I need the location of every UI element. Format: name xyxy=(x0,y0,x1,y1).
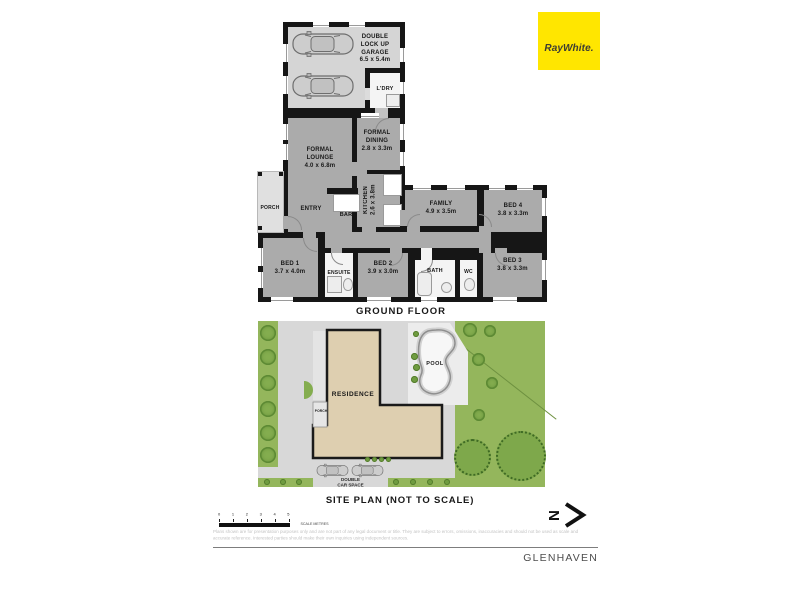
kitchen-bench xyxy=(383,174,402,196)
site-plan: RESIDENCE POOL PORCH DOUBLE CAR SPACE xyxy=(258,321,545,487)
shrub xyxy=(386,457,391,462)
tree xyxy=(472,353,485,366)
room-label-laundry: L'DRY xyxy=(368,86,402,93)
room-label-bed4: BED 4 3.8 x 3.3m xyxy=(489,203,537,219)
scale-unit-label: SCALE METRES xyxy=(301,522,329,526)
shrub xyxy=(411,353,418,360)
room-label-bar: BAR xyxy=(332,212,360,219)
window xyxy=(421,297,437,302)
window xyxy=(400,48,405,62)
room-label-garage: DOUBLE LOCK UP GARAGE 6.5 x 5.4m xyxy=(353,34,397,65)
room-label-bed3: BED 3 3.8 x 3.3m xyxy=(485,258,540,274)
car-space-label: DOUBLE CAR SPACE xyxy=(313,478,388,489)
window xyxy=(361,113,379,118)
room-label-bed2: BED 2 3.9 x 3.0m xyxy=(358,261,408,277)
scale-tick xyxy=(289,519,290,522)
ground-floor-title: GROUND FLOOR xyxy=(255,306,547,318)
car-icon xyxy=(316,463,349,478)
window xyxy=(283,44,288,62)
shrub xyxy=(413,331,419,337)
lawn-strip-left xyxy=(258,321,278,467)
shrub xyxy=(393,479,399,485)
porch-post xyxy=(258,172,262,176)
scale-bar-rule xyxy=(219,523,290,527)
north-letter: N xyxy=(545,510,562,521)
shower xyxy=(327,276,342,293)
window xyxy=(283,144,288,160)
scale-tick-label: 0 xyxy=(218,513,220,517)
shrub xyxy=(427,479,433,485)
hallway xyxy=(479,232,491,253)
porch-post xyxy=(279,172,283,176)
window xyxy=(283,124,288,140)
room-label-family: FAMILY 4.9 x 3.5m xyxy=(413,201,469,217)
disclaimer-text: Plans shown are for presentation purpose… xyxy=(213,529,599,543)
porch-post xyxy=(258,226,262,230)
pool-label: POOL xyxy=(420,361,450,368)
basin xyxy=(441,282,452,293)
door-opening xyxy=(352,162,357,176)
toilet xyxy=(343,278,353,291)
tree xyxy=(260,447,276,463)
shrub xyxy=(444,479,450,485)
shrub xyxy=(365,457,370,462)
north-arrow-chevron xyxy=(562,500,588,530)
window xyxy=(271,297,293,302)
toilet xyxy=(464,278,475,291)
shrub xyxy=(379,457,384,462)
window xyxy=(542,198,547,216)
raywhite-logo-text: RayWhite. xyxy=(544,43,593,54)
car-icon xyxy=(291,30,355,58)
residence-label: RESIDENCE xyxy=(318,391,388,399)
disclaimer-line1: Plans shown are for presentation purpose… xyxy=(213,529,599,536)
tree xyxy=(260,349,276,365)
shrub xyxy=(411,376,418,383)
scale-tick xyxy=(233,519,234,522)
room-label-kitchen: KITCHEN 2.6 x 3.8m xyxy=(363,174,379,226)
tree xyxy=(463,323,477,337)
site-plan-title: SITE PLAN (NOT TO SCALE) xyxy=(0,495,800,506)
laundry-trough xyxy=(386,94,400,107)
scale-tick xyxy=(275,519,276,522)
tree xyxy=(496,431,546,481)
window xyxy=(367,297,391,302)
ground-floor-plan: DOUBLE LOCK UP GARAGE 6.5 x 5.4m L'DRY F… xyxy=(255,20,547,320)
window xyxy=(283,76,288,94)
footer-divider xyxy=(213,547,598,548)
window xyxy=(447,185,465,190)
window xyxy=(258,248,263,266)
bathtub xyxy=(417,272,432,296)
suburb-label: GLENHAVEN xyxy=(213,552,598,564)
room-label-wc: WC xyxy=(458,269,479,276)
room-label-formal-dining: FORMAL DINING 2.8 x 3.3m xyxy=(357,130,397,153)
tree xyxy=(260,375,276,391)
door-opening xyxy=(400,210,405,226)
window xyxy=(349,22,365,27)
room-porch xyxy=(258,172,283,232)
bar-counter xyxy=(333,194,360,212)
window xyxy=(400,124,405,140)
shrub xyxy=(372,457,377,462)
tree xyxy=(484,325,496,337)
shrub xyxy=(413,364,420,371)
scale-tick-label: 5 xyxy=(287,513,289,517)
door-opening xyxy=(362,227,376,232)
room-label-entry: ENTRY xyxy=(293,206,329,214)
tree xyxy=(260,325,276,341)
car-icon xyxy=(291,72,355,100)
tree xyxy=(260,401,276,417)
window xyxy=(413,185,431,190)
shrub xyxy=(280,479,286,485)
window xyxy=(400,152,405,166)
tree xyxy=(454,439,491,476)
room-label-ensuite: ENSUITE xyxy=(322,270,356,277)
scale-tick xyxy=(261,519,262,522)
disclaimer-line2: accurate reference. Interested parties s… xyxy=(213,536,599,543)
scale-tick-label: 1 xyxy=(232,513,234,517)
scale-tick xyxy=(247,519,248,522)
window xyxy=(313,22,329,27)
tree xyxy=(260,425,276,441)
scale-tick-label: 2 xyxy=(246,513,248,517)
raywhite-logo: RayWhite. xyxy=(538,12,600,70)
tree xyxy=(473,409,485,421)
door-opening xyxy=(421,248,432,260)
room-label-porch: PORCH xyxy=(258,205,282,212)
tree xyxy=(486,377,498,389)
room-label-bed1: BED 1 3.7 x 4.0m xyxy=(265,261,315,277)
shrub xyxy=(296,479,302,485)
window xyxy=(489,185,505,190)
room-label-bath: BATH xyxy=(418,268,452,275)
scale-tick xyxy=(219,519,220,522)
window xyxy=(258,272,263,288)
window xyxy=(542,260,547,280)
window xyxy=(493,297,517,302)
shrub xyxy=(410,479,416,485)
floorplan-page: RayWhite. xyxy=(0,0,800,600)
scale-tick-label: 4 xyxy=(273,513,275,517)
window xyxy=(517,185,533,190)
scale-tick-label: 3 xyxy=(260,513,262,517)
hallway xyxy=(325,232,485,248)
room-label-formal-lounge: FORMAL LOUNGE 4.0 x 6.8m xyxy=(296,147,344,170)
shrub xyxy=(264,479,270,485)
car-icon xyxy=(351,463,384,478)
site-porch-label: PORCH xyxy=(307,410,335,414)
